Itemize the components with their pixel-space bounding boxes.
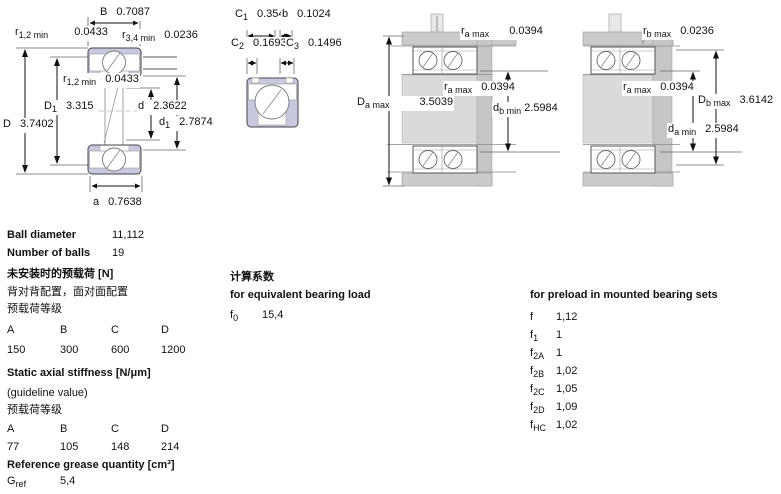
stiffness-value: 148 (111, 441, 129, 454)
dim-sub: b max (706, 98, 731, 108)
factor-symbol: f (530, 311, 556, 325)
dim-base: f (530, 311, 533, 323)
factor-symbol: f0 (230, 309, 262, 323)
dim-value: 0.7638 (108, 196, 142, 208)
dim-label-Db-max: Db max3.6142 (697, 94, 774, 109)
factor-symbol: f2B (530, 365, 556, 379)
factor-value: 1,02 (556, 365, 577, 377)
stiffness-note: (guideline value) (7, 387, 88, 400)
number-of-balls-label: Number of balls (7, 247, 90, 260)
dim-sub: 2A (533, 351, 544, 361)
dim-value: 0.1024 (297, 8, 331, 20)
dim-base: C (231, 37, 239, 49)
factor-row: f015,4 (230, 309, 283, 323)
dim-sub: 1,2 min (19, 30, 49, 40)
stiffness-class-header: D (161, 423, 169, 436)
number-of-balls-value: 19 (112, 247, 124, 260)
dim-value: 3.315 (66, 100, 94, 112)
dim-sub: 1 (52, 104, 57, 114)
stiffness-class-label: 预载荷等级 (7, 404, 62, 417)
stiffness-class-header: B (60, 423, 67, 436)
dim-label-b: b0.1024 (281, 8, 332, 23)
dim-label-B: B0.7087 (99, 6, 151, 21)
dim-label-db-min: db min2.5984 (492, 102, 559, 117)
preload-mounted-title: for preload in mounted bearing sets (530, 289, 718, 302)
dim-sub: b min (499, 106, 521, 116)
preload-unmounted-title: 未安装时的预载荷 [N] (7, 268, 113, 281)
dim-value: 2.3622 (153, 100, 187, 112)
factor-value: 1 (556, 347, 562, 359)
dim-value: 0.0236 (164, 29, 198, 41)
factor-value: 1,02 (556, 419, 577, 431)
factor-row: f2B1,02 (530, 365, 577, 379)
dim-value: 3.7402 (20, 118, 54, 130)
factor-value: 1,09 (556, 401, 577, 413)
stiffness-value: 214 (161, 441, 179, 454)
grease-symbol: Gref (7, 475, 60, 489)
ball-diameter-value: 11,112 (112, 229, 144, 242)
factor-symbol: f2C (530, 383, 556, 397)
dim-label-C2: C20.1693 (230, 37, 288, 52)
calc-factors-title: 计算系数 (230, 271, 274, 284)
dim-base: B (100, 6, 107, 18)
dim-sub: a max (448, 85, 473, 95)
dim-sub: 3,4 min (126, 33, 156, 43)
preload-value: 300 (60, 344, 78, 357)
dim-value: 0.0394 (660, 81, 694, 93)
dim-value: 0.1496 (308, 37, 342, 49)
factor-symbol: fHC (530, 419, 556, 433)
preload-class-header: B (60, 324, 67, 337)
dim-value: 0.0236 (680, 25, 714, 37)
stiffness-title: Static axial stiffness [N/μm] (7, 367, 151, 380)
dim-label-a: a0.7638 (92, 196, 143, 211)
dim-value: 0.1693 (253, 37, 287, 49)
dim-value: 2.7874 (179, 116, 213, 128)
dim-base: a (93, 196, 99, 208)
dim-sub: 2B (533, 369, 544, 379)
bearing-datasheet-page: B0.7087 r1,2 min0.0433 r3,4 min0.0236 r1… (0, 0, 781, 494)
dim-value: 3.5039 (419, 96, 453, 108)
factor-row: f2A1 (530, 347, 562, 361)
dim-sub: 2C (533, 387, 545, 397)
dim-value: 0.0433 (74, 26, 108, 38)
dim-sub: 0 (233, 313, 238, 323)
grease-row: Gref5,4 (7, 475, 75, 489)
dim-base: b (282, 8, 288, 20)
factor-row: f2D1,09 (530, 401, 577, 415)
dim-label-r12-min-mid: r1,2 min0.0433 (62, 73, 140, 88)
factor-row: f1,12 (530, 311, 577, 325)
preload-value: 150 (7, 344, 25, 357)
grease-title: Reference grease quantity [cm³] (7, 459, 175, 472)
dim-label-r12-min-top: r1,2 min0.0433 (14, 26, 109, 41)
dim-sub: 1 (243, 12, 248, 22)
dim-label-d1: d12.7874 (158, 116, 214, 131)
dim-label-C3: C30.1496 (285, 37, 343, 52)
grease-value: 5,4 (60, 475, 75, 487)
dim-label-ra-max-mid: ra max0.0394 (443, 81, 516, 96)
dim-sub: a max (365, 100, 390, 110)
dim-value: 0.0394 (509, 25, 543, 37)
ball-diameter-label: Ball diameter (7, 229, 76, 242)
preload-class-header: A (7, 324, 14, 337)
dim-value: 3.6142 (739, 94, 773, 106)
dim-sub: HC (533, 423, 546, 433)
dim-label-ra-max-top: ra max0.0394 (460, 25, 544, 40)
dim-base: G (7, 475, 16, 487)
factor-row: f2C1,05 (530, 383, 577, 397)
dim-label-D1: D13.315 (43, 100, 95, 115)
stiffness-class-header: A (7, 423, 14, 436)
dim-value: 2.5984 (705, 123, 739, 135)
dim-sub: 2 (239, 41, 244, 51)
dim-label-Da-max: Da max3.5039 (356, 96, 454, 111)
dim-sub: 1 (165, 120, 170, 130)
factor-row: fHC1,02 (530, 419, 577, 433)
dim-sub: ref (16, 479, 27, 489)
stiffness-value: 77 (7, 441, 19, 454)
dim-sub: a max (627, 85, 652, 95)
dim-label-d: d2.3622 (137, 100, 188, 115)
factor-symbol: f1 (530, 329, 556, 343)
equivalent-load-title: for equivalent bearing load (230, 289, 371, 302)
dim-sub: b max (647, 29, 672, 39)
dim-label-C1: C10.354 (234, 8, 286, 23)
preload-arrangement-note: 背对背配置，面对面配置 (7, 286, 128, 299)
stiffness-class-header: C (111, 423, 119, 436)
dim-label-da-min: da min2.5984 (667, 123, 740, 138)
preload-class-label: 预载荷等级 (7, 303, 62, 316)
factor-value: 1,12 (556, 311, 577, 323)
dim-base: C (286, 37, 294, 49)
dim-base: D (698, 94, 706, 106)
dim-value: 0.0433 (105, 73, 139, 85)
dim-base: d (138, 100, 144, 112)
dim-label-ra-max: ra max0.0394 (622, 81, 695, 96)
dim-base: D (44, 100, 52, 112)
factor-symbol: f2D (530, 401, 556, 415)
factor-value: 1 (556, 329, 562, 341)
preload-value: 1200 (161, 344, 185, 357)
dim-label-rb-max: rb max0.0236 (642, 25, 715, 40)
preload-value: 600 (111, 344, 129, 357)
dim-value: 0.7087 (116, 6, 150, 18)
dim-label-r34-min: r3,4 min0.0236 (121, 29, 199, 44)
dim-value: 2.5984 (524, 102, 558, 114)
dim-sub: 2D (533, 405, 545, 415)
preload-class-header: D (161, 324, 169, 337)
stiffness-value: 105 (60, 441, 78, 454)
dim-value: 0.0394 (481, 81, 515, 93)
dim-sub: a min (674, 127, 696, 137)
dim-base: D (3, 118, 11, 130)
dim-sub: a max (465, 29, 490, 39)
dim-label-D: D3.7402 (2, 118, 55, 133)
factor-value: 15,4 (262, 309, 283, 321)
factor-value: 1,05 (556, 383, 577, 395)
dim-sub: 1,2 min (67, 77, 97, 87)
dim-sub: 3 (294, 41, 299, 51)
factor-symbol: f2A (530, 347, 556, 361)
dim-base: C (235, 8, 243, 20)
dim-sub: 1 (533, 333, 538, 343)
factor-row: f11 (530, 329, 562, 343)
preload-class-header: C (111, 324, 119, 337)
dim-base: D (357, 96, 365, 108)
